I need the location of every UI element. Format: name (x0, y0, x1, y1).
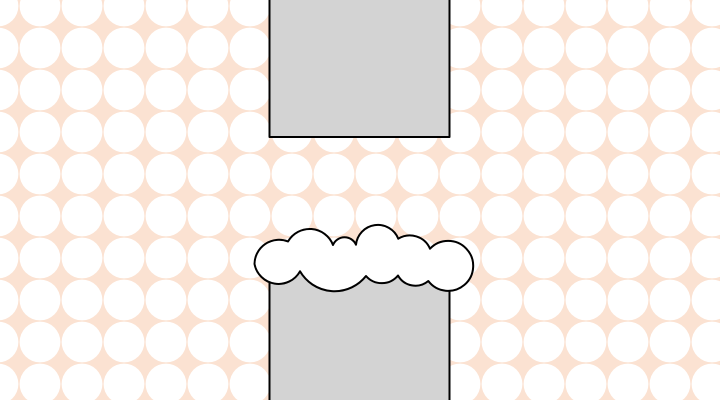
top-pipe (270, 0, 450, 137)
game-scene[interactable] (0, 0, 720, 400)
game-canvas (0, 0, 720, 400)
bottom-pipe (270, 272, 450, 400)
